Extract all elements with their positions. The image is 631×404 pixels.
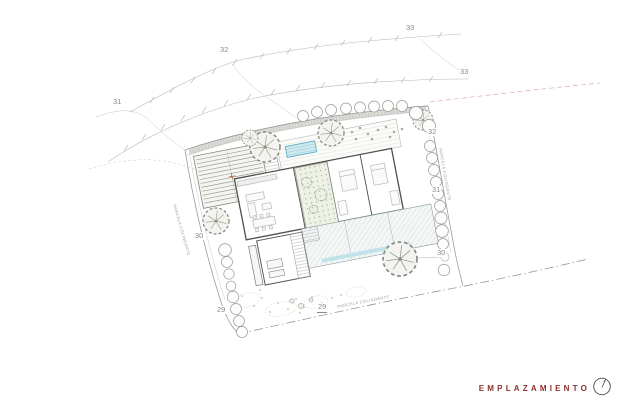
elevation-label: 31	[431, 186, 441, 194]
sheet-title: EMPLAZAMIENTO	[470, 384, 590, 394]
setback-dashed-line	[430, 83, 600, 102]
elevation-label: 31	[112, 98, 122, 106]
elevation-label: 30	[436, 249, 446, 257]
elevation-label: 33	[459, 68, 469, 76]
deck-stair	[301, 226, 319, 243]
lower-wing	[257, 232, 311, 285]
small-shrubs-bottom	[290, 298, 313, 309]
leader-line	[417, 257, 441, 258]
elevation-label: 29	[317, 303, 327, 313]
elevation-label: 32	[427, 128, 437, 136]
elevation-label: 30	[194, 232, 204, 240]
elevation-label: 29	[216, 306, 226, 314]
elevation-label: 33	[405, 24, 415, 32]
site-plan-drawing	[0, 0, 631, 404]
sheet-number-icon	[592, 376, 612, 396]
elevation-label: 32	[219, 46, 229, 54]
fence-ticks-upper	[150, 32, 442, 103]
site-plan-sheet: 31 32 33 33 32 31 30 30 29 29 PARCELA CO…	[0, 0, 631, 404]
